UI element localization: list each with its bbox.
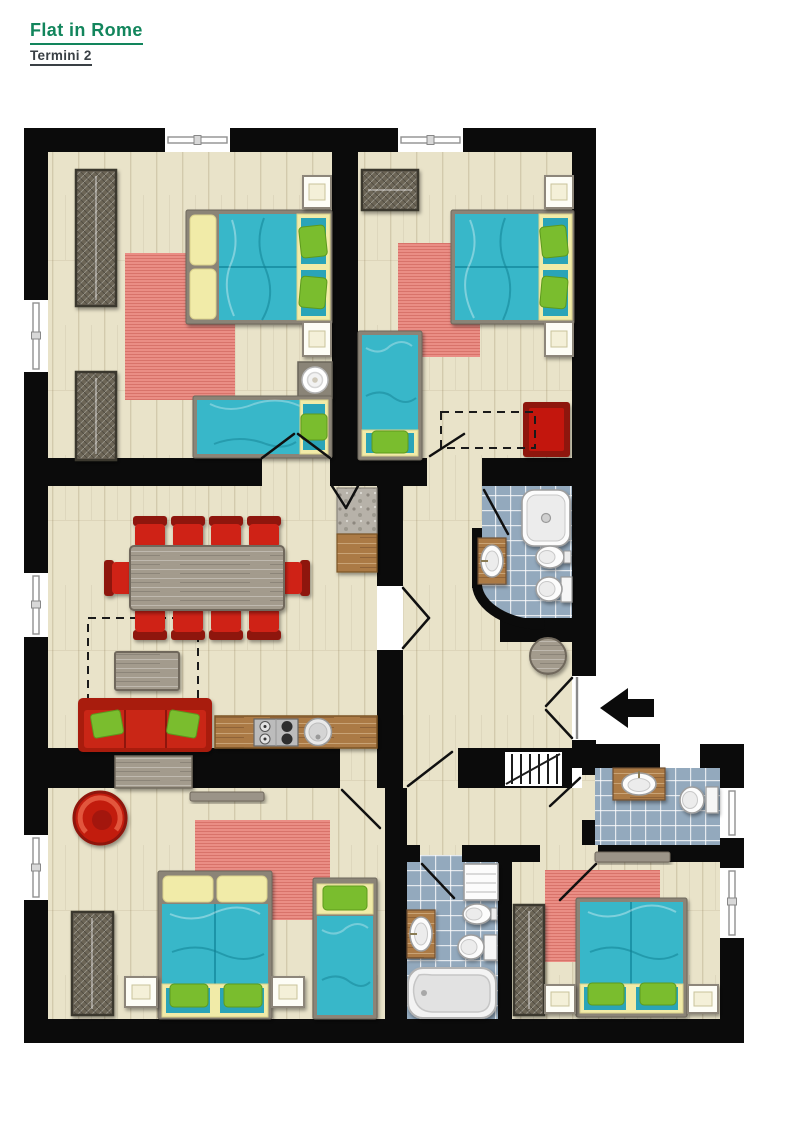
single-bed <box>193 396 332 458</box>
dining-chair <box>209 608 243 640</box>
window-left-1 <box>24 300 48 372</box>
single-bed <box>358 331 422 460</box>
double-bed <box>158 871 272 1019</box>
window-left-2 <box>24 573 48 637</box>
window-right-bathroom <box>720 788 744 838</box>
page: Flat in Rome Termini 2 <box>0 0 800 1132</box>
cabinet <box>464 864 498 900</box>
nightstand <box>545 176 573 208</box>
nightstand <box>272 977 304 1007</box>
toilet <box>458 935 497 960</box>
floor-plan <box>0 0 800 1132</box>
nightstand <box>303 322 331 356</box>
window-right-bedroom <box>720 868 744 938</box>
corner-counter <box>337 488 377 572</box>
wardrobe <box>514 905 544 1015</box>
stairs-niche <box>505 752 562 786</box>
nightstand <box>688 985 718 1013</box>
dining-chair <box>171 608 205 640</box>
dining-chair <box>209 516 243 548</box>
stove <box>254 719 298 746</box>
hallway <box>530 638 566 674</box>
dining-chair <box>133 608 167 640</box>
dining-chair <box>247 608 281 640</box>
double-bed <box>451 210 574 324</box>
window-left-3 <box>24 835 48 900</box>
dining-table <box>130 546 284 610</box>
nightstand <box>545 985 575 1013</box>
dining-chair <box>247 516 281 548</box>
washbasin <box>613 768 665 800</box>
round-armchair <box>74 792 126 844</box>
nightstand <box>545 322 573 356</box>
sideboard <box>115 756 192 788</box>
double-bed <box>576 898 687 1017</box>
shelf <box>595 852 670 862</box>
coffee-table <box>115 652 179 690</box>
nightstand <box>303 176 331 208</box>
shelf <box>190 792 264 801</box>
kitchen-counter <box>215 716 377 748</box>
wardrobe <box>76 170 116 306</box>
entrance-arrow <box>600 688 654 728</box>
wall-niche <box>660 744 700 768</box>
armchair-square <box>523 402 570 457</box>
entrance-door <box>572 676 596 740</box>
sofa <box>78 698 212 752</box>
dining-chair <box>133 516 167 548</box>
wardrobe <box>362 170 418 210</box>
toilet <box>680 787 718 813</box>
washbasin <box>478 538 506 584</box>
wardrobe <box>76 372 116 460</box>
fan <box>298 362 332 398</box>
dining-chair <box>171 516 205 548</box>
bathtub <box>408 968 496 1018</box>
single-bed <box>313 878 377 1019</box>
nightstand <box>125 977 157 1007</box>
kitchen-sink <box>305 719 332 746</box>
window-top-2 <box>398 128 463 152</box>
washbasin <box>407 910 435 958</box>
window-top-1 <box>165 128 230 152</box>
double-bed <box>186 210 332 324</box>
toilet <box>536 577 572 602</box>
round-stool <box>530 638 566 674</box>
wardrobe <box>72 912 113 1015</box>
shower <box>522 490 570 546</box>
floor-corridor <box>403 788 582 845</box>
